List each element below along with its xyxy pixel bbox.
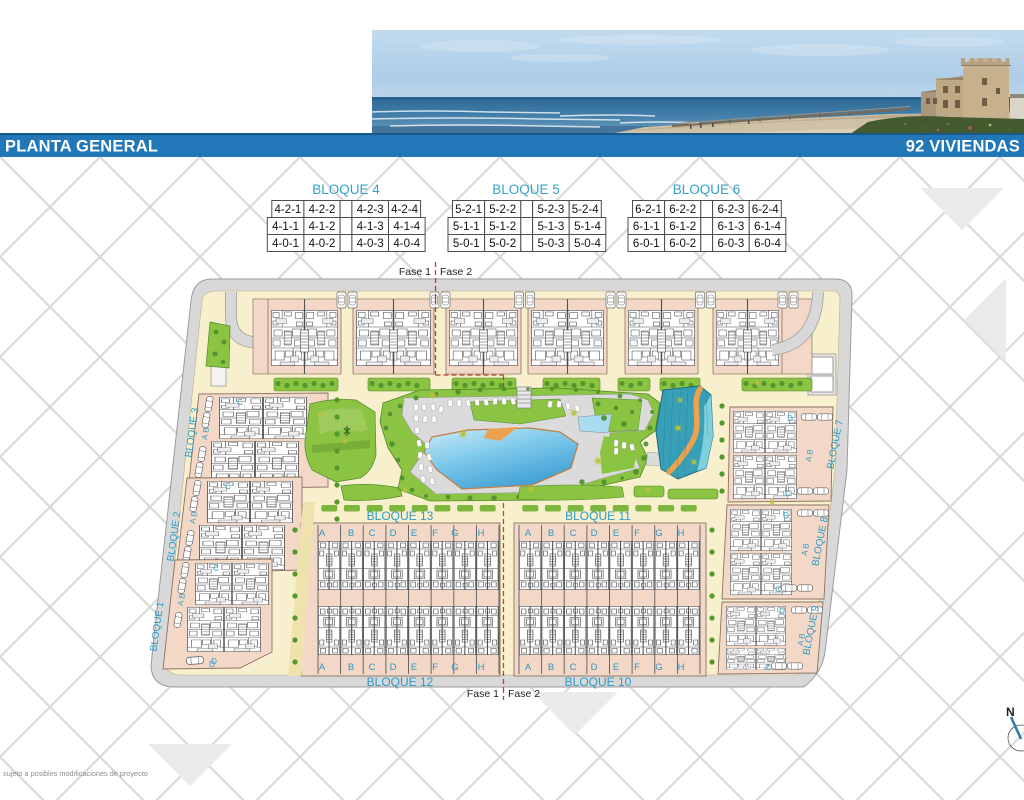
svg-text:PLANTA GENERAL: PLANTA GENERAL [5, 138, 158, 156]
svg-text:6-2-3: 6-2-3 [717, 204, 744, 216]
svg-text:5-2-1: 5-2-1 [455, 204, 482, 216]
svg-text:A: A [319, 528, 326, 539]
svg-text:5-1-3: 5-1-3 [537, 221, 564, 233]
svg-text:Fase 1: Fase 1 [467, 688, 499, 700]
svg-text:5-0-3: 5-0-3 [537, 238, 564, 250]
svg-text:D: D [787, 414, 793, 423]
svg-text:E: E [613, 528, 619, 539]
svg-text:4-0-1: 4-0-1 [272, 238, 299, 250]
svg-text:B: B [348, 528, 354, 539]
svg-text:5-2-4: 5-2-4 [572, 204, 599, 216]
svg-text:92 VIVIENDAS: 92 VIVIENDAS [906, 138, 1020, 156]
svg-text:Fase 2: Fase 2 [508, 688, 540, 700]
svg-text:sujeto a posibles modificacion: sujeto a posibles modificaciones de proy… [3, 769, 148, 778]
svg-text:Fase 1: Fase 1 [399, 266, 431, 278]
svg-text:H: H [678, 528, 685, 539]
svg-text:C: C [237, 398, 243, 407]
svg-text:BLOQUE 4: BLOQUE 4 [312, 182, 380, 197]
svg-text:6-2-1: 6-2-1 [635, 204, 662, 216]
svg-text:B: B [548, 528, 554, 539]
svg-text:6-0-4: 6-0-4 [754, 238, 781, 250]
svg-text:D: D [591, 528, 598, 539]
svg-text:6-0-2: 6-0-2 [669, 238, 696, 250]
svg-text:BLOQUE 13: BLOQUE 13 [367, 509, 434, 523]
svg-text:6-1-1: 6-1-1 [633, 221, 660, 233]
svg-text:4-1-2: 4-1-2 [309, 221, 336, 233]
svg-text:C: C [765, 663, 771, 672]
svg-text:BLOQUE 12: BLOQUE 12 [367, 675, 434, 689]
svg-text:5-0-1: 5-0-1 [453, 238, 480, 250]
svg-text:BLOQUE 11: BLOQUE 11 [565, 509, 631, 523]
svg-text:BLOQUE 5: BLOQUE 5 [492, 182, 560, 197]
svg-text:5-2-2: 5-2-2 [489, 204, 516, 216]
svg-text:4-2-3: 4-2-3 [357, 204, 384, 216]
svg-text:D: D [209, 659, 215, 669]
svg-text:6-1-4: 6-1-4 [754, 221, 781, 233]
svg-text:C: C [213, 564, 219, 573]
svg-text:B: B [548, 662, 554, 673]
svg-text:D: D [783, 511, 789, 520]
svg-text:C: C [369, 528, 376, 539]
svg-text:H: H [478, 662, 485, 673]
svg-text:C: C [785, 489, 791, 498]
svg-text:C: C [225, 482, 231, 491]
svg-text:6-0-1: 6-0-1 [633, 238, 660, 250]
svg-text:D: D [591, 662, 598, 673]
svg-text:4-1-4: 4-1-4 [393, 221, 420, 233]
svg-text:4-0-2: 4-0-2 [309, 238, 336, 250]
svg-text:D: D [779, 607, 785, 616]
svg-text:4-2-4: 4-2-4 [391, 204, 418, 216]
svg-text:BLOQUE 6: BLOQUE 6 [673, 182, 741, 197]
svg-text:E: E [411, 662, 417, 673]
svg-text:4-1-1: 4-1-1 [272, 221, 299, 233]
svg-text:B: B [348, 662, 354, 673]
svg-text:Fase 2: Fase 2 [440, 266, 472, 278]
svg-text:C: C [570, 662, 577, 673]
svg-text:F: F [432, 662, 438, 673]
svg-text:6-2-4: 6-2-4 [752, 204, 779, 216]
svg-text:4-0-4: 4-0-4 [393, 238, 420, 250]
svg-text:G: G [655, 662, 662, 673]
svg-text:G: G [451, 528, 458, 539]
svg-text:E: E [613, 662, 619, 673]
svg-text:4-1-3: 4-1-3 [357, 221, 384, 233]
svg-text:D: D [390, 528, 397, 539]
svg-text:5-1-1: 5-1-1 [453, 221, 480, 233]
svg-text:H: H [478, 528, 485, 539]
svg-text:A: A [319, 662, 326, 673]
svg-text:4-0-3: 4-0-3 [357, 238, 384, 250]
svg-text:D: D [390, 662, 397, 673]
svg-text:C: C [369, 662, 376, 673]
svg-text:4-2-1: 4-2-1 [274, 204, 301, 216]
svg-text:G: G [451, 662, 458, 673]
svg-text:6-2-2: 6-2-2 [669, 204, 696, 216]
svg-text:F: F [634, 528, 640, 539]
svg-text:4-2-2: 4-2-2 [309, 204, 336, 216]
svg-text:F: F [634, 662, 640, 673]
svg-text:5-0-2: 5-0-2 [489, 238, 516, 250]
svg-text:5-0-4: 5-0-4 [574, 238, 601, 250]
svg-text:6-0-3: 6-0-3 [717, 238, 744, 250]
svg-text:H: H [678, 662, 685, 673]
svg-text:5-1-4: 5-1-4 [574, 221, 601, 233]
svg-text:5-1-2: 5-1-2 [489, 221, 516, 233]
svg-text:A: A [525, 662, 532, 673]
svg-text:5-2-3: 5-2-3 [537, 204, 564, 216]
svg-text:A: A [525, 528, 532, 539]
svg-text:6-1-3: 6-1-3 [717, 221, 744, 233]
svg-text:C: C [775, 585, 781, 594]
svg-text:E: E [411, 528, 417, 539]
svg-text:BLOQUE 10: BLOQUE 10 [565, 675, 632, 689]
svg-text:C: C [570, 528, 577, 539]
svg-text:N: N [1006, 705, 1015, 719]
svg-text:F: F [432, 528, 438, 539]
svg-text:G: G [655, 528, 662, 539]
svg-text:6-1-2: 6-1-2 [669, 221, 696, 233]
